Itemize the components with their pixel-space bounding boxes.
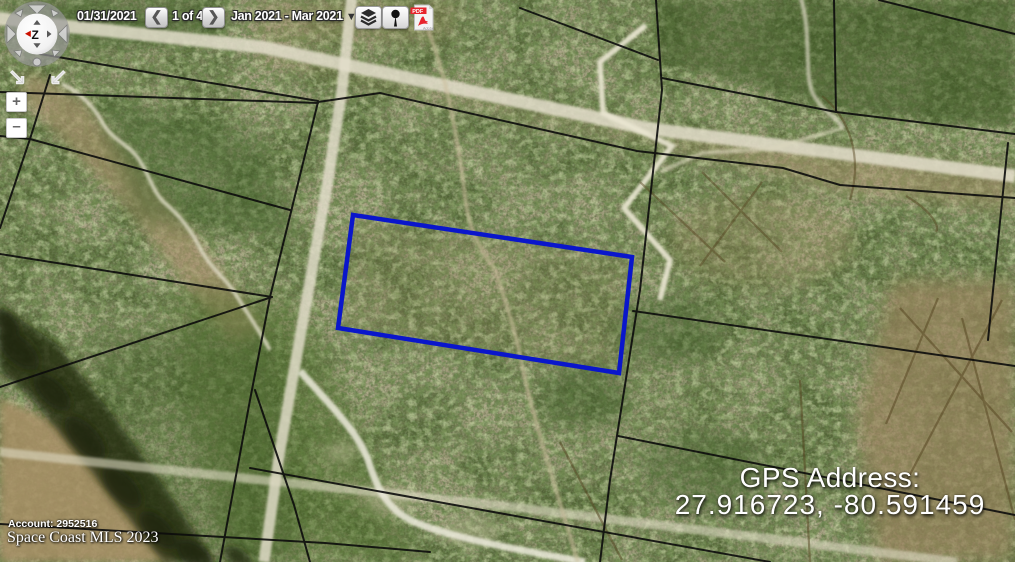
svg-text:↙: ↙	[49, 64, 67, 86]
svg-text:Adobe: Adobe	[423, 27, 434, 31]
svg-text:PDF: PDF	[412, 9, 424, 15]
svg-text:↘: ↘	[8, 64, 26, 86]
svg-text:Z: Z	[32, 28, 39, 42]
